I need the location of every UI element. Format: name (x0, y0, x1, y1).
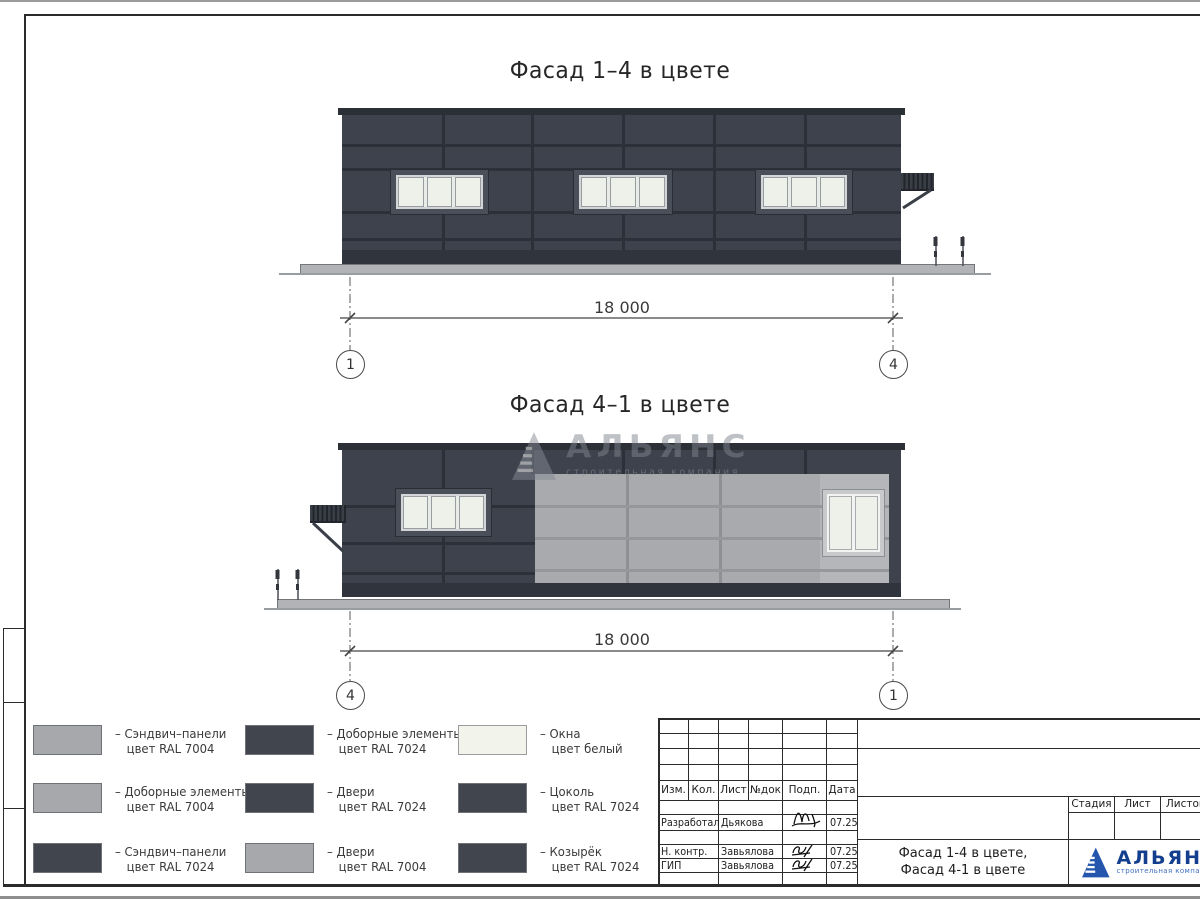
window-pane (820, 177, 845, 207)
panel-seam (342, 238, 901, 241)
window-pane (763, 177, 788, 207)
panel-seam (342, 572, 535, 575)
signature-icon (790, 806, 824, 830)
doc-title-line1: Фасад 1-4 в цвете, (899, 845, 1028, 862)
col-data: Дата (827, 780, 857, 800)
legend-swatch (458, 843, 527, 873)
col-izm: Изм. (659, 780, 688, 800)
margin-col-line (3, 628, 4, 885)
legend-item-label: – Козырёкцвет RAL 7024 (540, 845, 639, 874)
window-pane (829, 496, 852, 550)
window-pane (427, 177, 453, 207)
facade1-dimension-label: 18 000 (562, 298, 682, 317)
doc-title-line2: Фасад 4-1 в цвете (901, 862, 1026, 879)
panel-seam (719, 474, 722, 583)
window-pane (855, 496, 878, 550)
facade1-window-2 (574, 170, 672, 214)
facade1-plinth (342, 250, 901, 264)
legend-swatch (245, 783, 314, 813)
facade2-corner-strip (889, 450, 901, 583)
window-pane (581, 177, 607, 207)
row-date: 07.25 (830, 846, 858, 858)
legend-swatch (458, 783, 527, 813)
legend-item-label: – Дверицвет RAL 7024 (327, 785, 426, 814)
facade2-title: Фасад 4–1 в цвете (354, 392, 886, 418)
col-ndok: №док (749, 780, 782, 800)
margin-div-3 (3, 808, 25, 809)
facade2-axis-right: 1 (879, 681, 908, 710)
panel-seam (531, 115, 534, 250)
facade1-window-1 (391, 170, 488, 214)
legend-item-label: – Окнацвет белый (540, 727, 623, 756)
legend-item-label: – Цокольцвет RAL 7024 (540, 785, 639, 814)
watermark-name: АЛЬЯНС (566, 432, 751, 462)
col-kol: Кол. (689, 780, 718, 800)
window-pane (398, 177, 424, 207)
legend-swatch (458, 725, 527, 755)
row-date: 07.25 (830, 817, 858, 829)
signature-icon (790, 843, 824, 858)
panel-seam (626, 474, 629, 583)
axis-number: 4 (346, 688, 355, 704)
facade2-axis-left: 4 (336, 681, 365, 710)
row-name: Завьялова (721, 846, 774, 858)
legend-item-label: – Дверицвет RAL 7004 (327, 845, 426, 874)
margin-div-1 (3, 628, 25, 629)
panel-seam (342, 542, 535, 545)
axis-number: 1 (889, 688, 898, 704)
legend-item-label: – Доборные элементыцвет RAL 7024 (327, 727, 463, 756)
window-pane (639, 177, 665, 207)
window-pane (610, 177, 636, 207)
legend-swatch (33, 843, 102, 873)
panel-seam (342, 144, 901, 147)
frame-left (24, 14, 26, 886)
facade1-window-3 (756, 170, 852, 214)
row-role: Разработал (661, 817, 720, 829)
panel-seam (713, 115, 716, 250)
watermark-subtitle: строительная компания (566, 467, 742, 478)
alliance-pyramid-icon (512, 432, 556, 480)
row-role: Н. контр. (661, 846, 707, 858)
window-pane (431, 496, 456, 529)
axis-number: 4 (889, 357, 898, 373)
legend-item-label: – Сэндвич–панелицвет RAL 7024 (115, 845, 226, 874)
col-sheet: Лист (1115, 796, 1160, 812)
facade1-parapet (338, 108, 905, 115)
legend-swatch (245, 843, 314, 873)
alliance-pyramid-icon (1082, 846, 1110, 879)
row-role: ГИП (661, 860, 681, 872)
doc-title: Фасад 1-4 в цвете, Фасад 4-1 в цвете (858, 839, 1068, 885)
legend-swatch (33, 725, 102, 755)
row-name: Дьякова (721, 817, 763, 829)
legend-swatch (33, 783, 102, 813)
row-name: Завьялова (721, 860, 774, 872)
logo-name: АЛЬЯНС (1117, 849, 1200, 867)
watermark: АЛЬЯНС строительная компания (512, 432, 742, 480)
facade2-plinth (342, 583, 901, 597)
window-pane (455, 177, 481, 207)
margin-div-2 (3, 702, 25, 703)
facade2-dimension-label: 18 000 (562, 630, 682, 649)
company-logo: АЛЬЯНС строительная компания (1068, 839, 1200, 885)
axis-number: 1 (346, 357, 355, 373)
facade1-axis-left: 1 (336, 350, 365, 379)
window-pane (403, 496, 428, 529)
legend-item-label: – Сэндвич–панелицвет RAL 7004 (115, 727, 226, 756)
facade1-title: Фасад 1–4 в цвете (354, 58, 886, 84)
facade2-light-section (535, 474, 820, 583)
window-pane (459, 496, 484, 529)
facade2-window-right (823, 490, 884, 556)
facade2-canopy (310, 505, 346, 523)
col-list: Лист (719, 780, 748, 800)
window-pane (791, 177, 816, 207)
facade1-canopy (901, 173, 934, 191)
facade2-window-left (396, 489, 491, 536)
col-podp: Подп. (783, 780, 826, 800)
logo-subtitle: строительная компания (1117, 867, 1200, 875)
legend-item-label: – Доборные элементыцвет RAL 7004 (115, 785, 251, 814)
drawing-sheet: Фасад 1–4 в цвете (0, 0, 1200, 900)
col-sheets: Листов (1161, 796, 1200, 812)
frame-top (24, 14, 1200, 16)
facade1-foundation (300, 264, 975, 274)
col-stage: Стадия (1069, 796, 1114, 812)
facade2-foundation (277, 599, 950, 609)
row-date: 07.25 (830, 860, 858, 872)
facade1-axis-right: 4 (879, 350, 908, 379)
legend-swatch (245, 725, 314, 755)
page-edge-bottom (0, 896, 1200, 899)
signature-icon (790, 857, 824, 872)
page-edge-top (0, 0, 1200, 2)
panel-seam (535, 569, 889, 572)
panel-seam (804, 450, 807, 474)
